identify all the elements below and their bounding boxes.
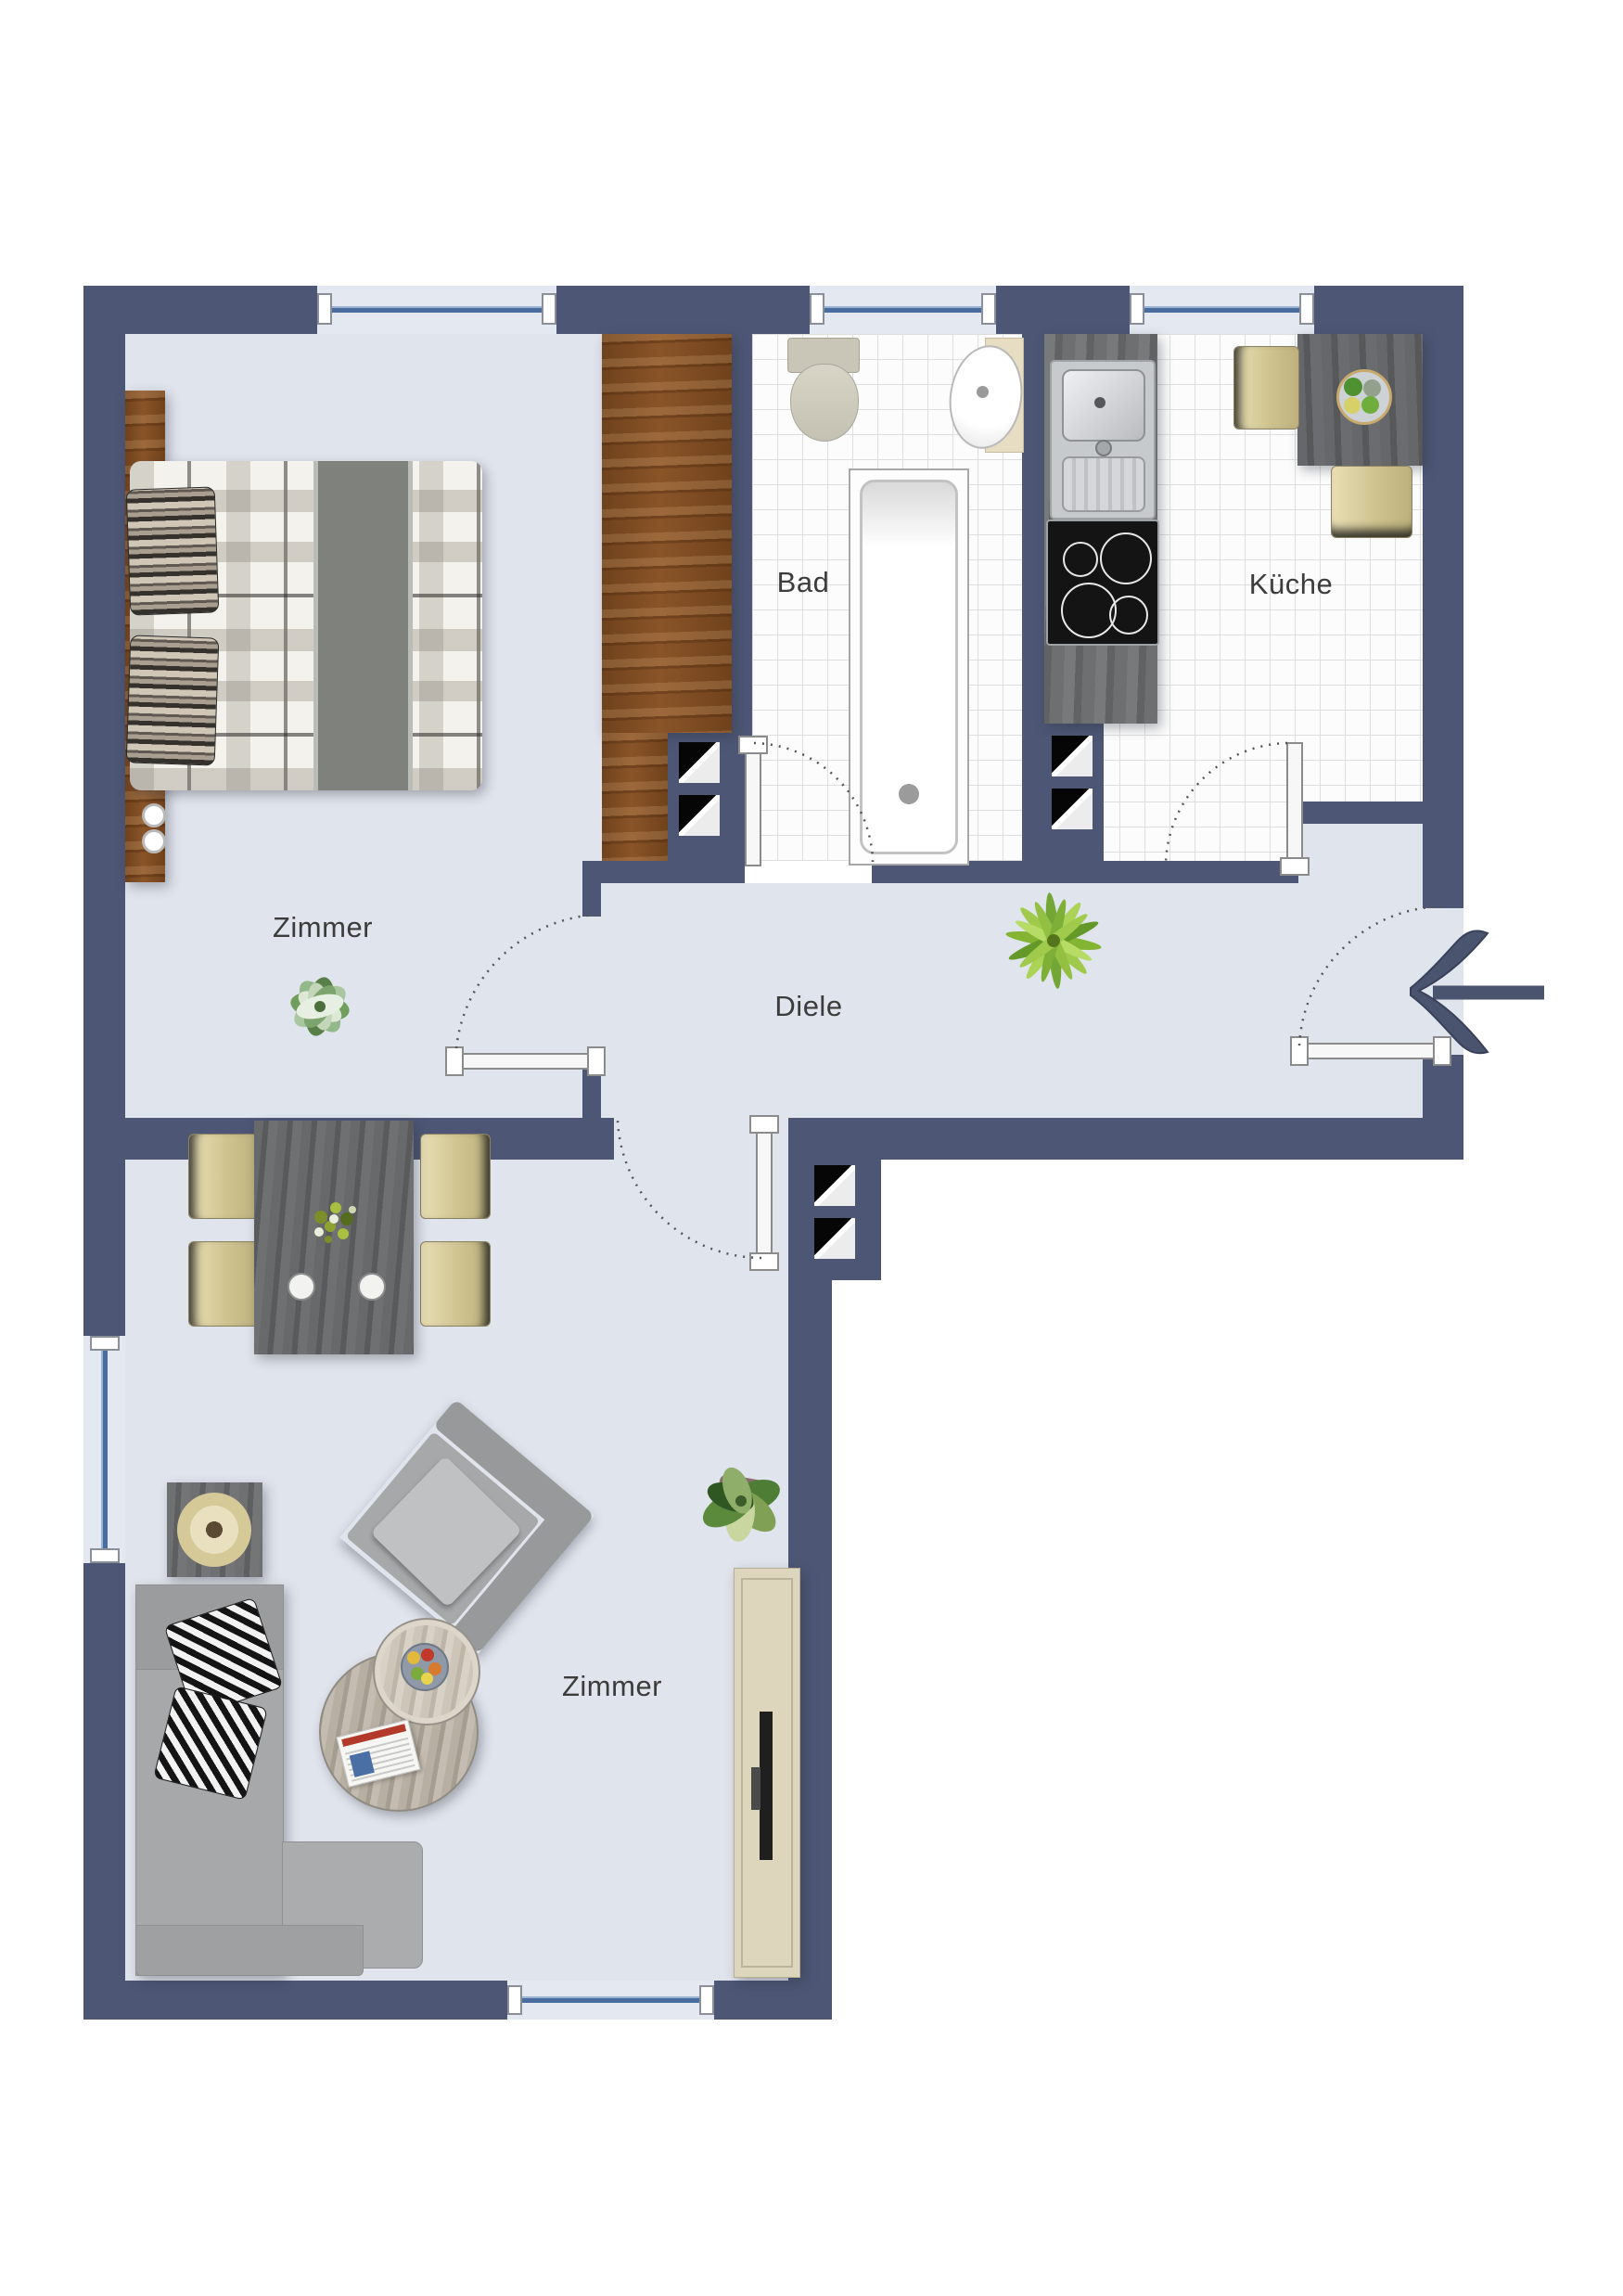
door-swing-arc <box>1166 743 1287 863</box>
bedroom-plant-icon <box>288 974 352 1039</box>
room-label-hallway: Diele <box>774 990 842 1023</box>
entrance-arrow-icon <box>1411 930 1544 1053</box>
door-swing-arc <box>1299 906 1442 1045</box>
room-label-bathroom: Bad <box>777 566 830 599</box>
floor-plan: Zimmer Bad Küche Diele Zimmer <box>0 0 1623 2296</box>
headboard-knob <box>142 803 166 827</box>
room-label-bedroom: Zimmer <box>273 911 373 944</box>
overlay-graphics <box>0 0 1623 2296</box>
headboard-knob <box>142 829 166 853</box>
room-label-living-room: Zimmer <box>562 1670 662 1703</box>
door-swing-arc <box>754 743 873 862</box>
living-plant-icon <box>696 1464 785 1544</box>
table-flowers-icon <box>314 1202 356 1243</box>
door-swing-arc <box>456 915 596 1048</box>
hallway-plant-icon <box>1005 892 1103 990</box>
door-swing-arc <box>618 1121 761 1258</box>
room-label-kitchen: Küche <box>1249 568 1333 601</box>
